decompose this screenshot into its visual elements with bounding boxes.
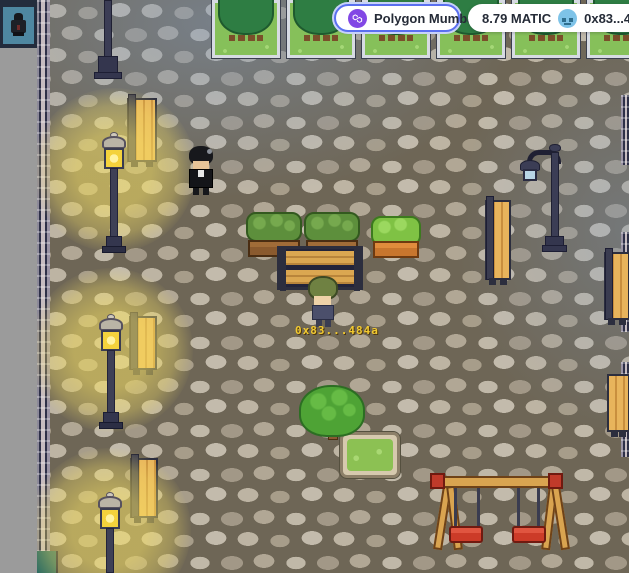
lamp-pole: [106, 528, 114, 573]
bench-back: [605, 248, 613, 320]
bench-foot: [147, 516, 154, 523]
lamp-plate: [102, 246, 126, 253]
player-avatar-icon: [11, 13, 26, 37]
lamp-plate: [99, 422, 123, 429]
planter-grass: [347, 439, 393, 471]
sidebar-avatar-button[interactable]: [3, 7, 34, 44]
bench: [604, 252, 629, 320]
lamp-glass: [104, 148, 124, 169]
lamp-post: [551, 152, 559, 242]
npc-character[interactable]: [186, 146, 216, 198]
bench: [485, 200, 511, 280]
tree-planter: [212, 0, 280, 58]
bench: [127, 98, 157, 162]
bench-foot: [608, 318, 615, 325]
bench-leg: [280, 249, 286, 291]
bench: [129, 316, 157, 370]
swing-bar-cap: [430, 473, 445, 489]
planter-dirt: [229, 35, 263, 41]
lamp-finial: [549, 144, 561, 152]
bench-back: [486, 196, 494, 280]
npc-leg: [203, 188, 209, 195]
player-body: [312, 305, 334, 320]
player-address-label: 0x83...484a: [295, 324, 379, 337]
swing-chain: [477, 488, 480, 530]
bench-foot: [619, 430, 626, 437]
planter-dirt: [529, 35, 563, 41]
water-patch: [37, 551, 58, 573]
npc-leg: [193, 188, 199, 195]
network-selector-pill[interactable]: Polygon Mumbai: [334, 4, 460, 32]
lamp-glass: [101, 330, 121, 351]
bench-foot: [133, 368, 140, 375]
bench-back: [128, 94, 136, 162]
planter-tree: [218, 0, 274, 35]
hedge-box: [373, 241, 419, 258]
npc-shirt: [198, 170, 204, 177]
lamp-pole: [110, 168, 118, 238]
bench-foot: [134, 516, 141, 523]
bench-foot: [611, 430, 618, 437]
bench-foot: [619, 318, 626, 325]
bench-foot: [146, 368, 153, 375]
bench-back: [130, 312, 138, 370]
lamp-post-plate: [542, 245, 567, 252]
bench-leg: [354, 249, 360, 291]
lamp-glass: [100, 508, 120, 529]
planter-dirt: [604, 35, 629, 41]
planter-dirt: [379, 35, 413, 41]
network-name: Polygon Mumbai: [374, 11, 478, 26]
hedge-bush: [304, 212, 360, 242]
bench: [130, 458, 158, 518]
stone-planter: [340, 432, 400, 478]
bench-foot: [500, 278, 507, 285]
wallet-balance: 8.79 MATIC: [482, 11, 551, 26]
swing-seat: [512, 526, 546, 543]
bench-back: [131, 454, 139, 518]
lamp-post-plate: [94, 72, 122, 79]
wallet-pill[interactable]: 8.79 MATIC 0x83...484a: [468, 4, 629, 32]
right-wall: [621, 95, 629, 165]
tree-crown: [299, 385, 365, 437]
planter-dirt: [454, 35, 488, 41]
app-window: 0x83...484a Polygon Mumbai: [0, 0, 629, 573]
crate-table: [607, 374, 629, 432]
swing-chain: [454, 488, 457, 530]
polygon-logo-icon: [348, 9, 367, 28]
hedge-bush: [246, 212, 302, 242]
npc-head-accent: [207, 149, 212, 154]
lamp-post: [104, 0, 112, 60]
bench-foot: [131, 160, 138, 167]
swing-chain: [517, 488, 520, 530]
sidebar: [0, 0, 37, 573]
swing-chain: [537, 488, 540, 530]
planter-dirt: [304, 35, 338, 41]
wallet-avatar-icon: [558, 9, 577, 28]
bench-foot: [146, 160, 153, 167]
bench-foot: [489, 278, 496, 285]
lamp-pole: [107, 350, 115, 414]
swing-top-bar: [432, 476, 562, 488]
left-wall: [37, 0, 50, 573]
hedge-planter: [371, 216, 421, 258]
wallet-address: 0x83...484a: [584, 11, 629, 26]
bench-plank: [283, 251, 357, 265]
game-map[interactable]: 0x83...484a: [37, 0, 629, 573]
lamp-glass: [523, 169, 537, 181]
swing-bar-cap: [548, 473, 563, 489]
player-character[interactable]: [306, 276, 340, 328]
swing-seat: [449, 526, 483, 543]
